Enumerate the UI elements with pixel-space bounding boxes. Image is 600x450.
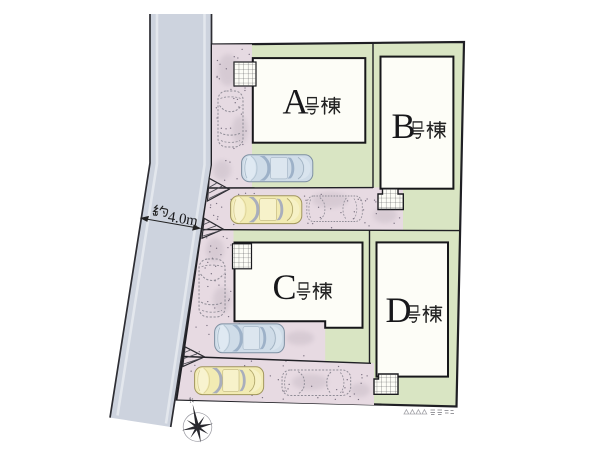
svg-text:B: B — [392, 106, 416, 146]
svg-text:D: D — [386, 290, 412, 330]
svg-text:A: A — [283, 82, 309, 122]
svg-text:C: C — [273, 267, 297, 307]
